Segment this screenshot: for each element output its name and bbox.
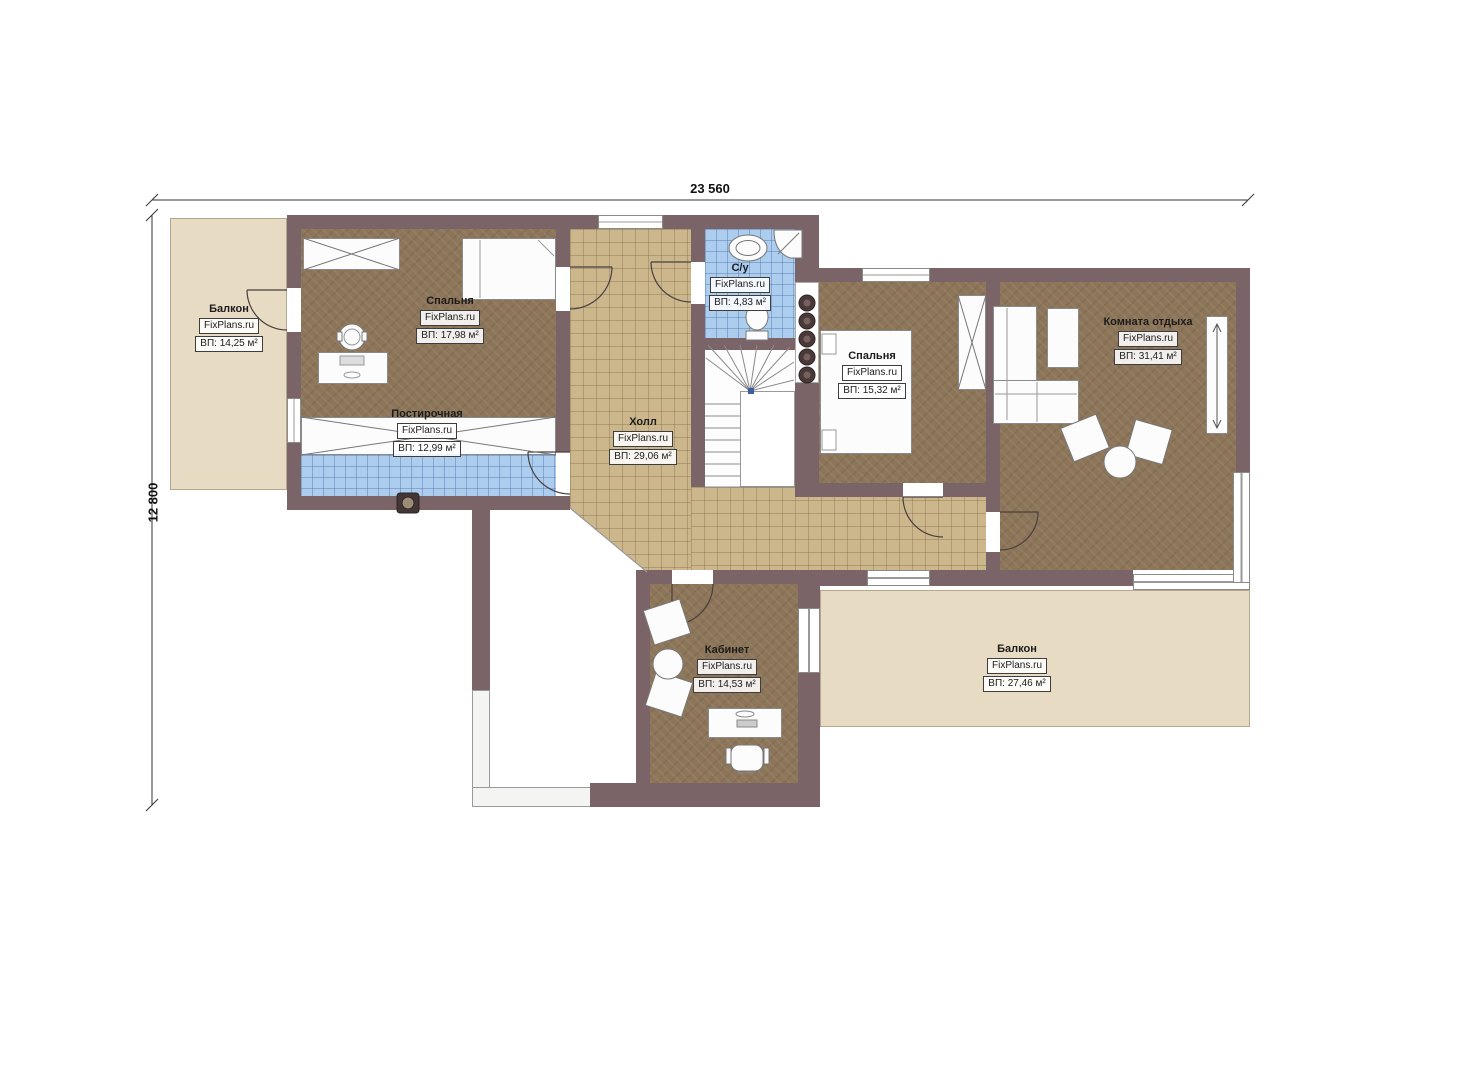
room-area: ВП: 17,98 м² bbox=[416, 328, 483, 344]
room-label-balcony-left: Балкон FixPlans.ru ВП: 14,25 м² bbox=[172, 303, 286, 352]
bedroom1-left-window bbox=[287, 398, 301, 443]
wall-stairs-right bbox=[795, 383, 819, 487]
laundry-door-opening bbox=[556, 452, 570, 496]
bedroom2-top-window bbox=[862, 268, 930, 282]
stair-column-ledge bbox=[795, 282, 819, 383]
bedroom2-door-opening bbox=[903, 483, 943, 497]
room-watermark: FixPlans.ru bbox=[1118, 331, 1178, 347]
room-area: ВП: 27,46 м² bbox=[983, 676, 1050, 692]
room-name: Спальня bbox=[818, 350, 926, 363]
room-name: С/у bbox=[694, 262, 786, 275]
room-watermark: FixPlans.ru bbox=[987, 658, 1047, 674]
room-name: Комната отдыха bbox=[1093, 316, 1203, 329]
floor-plan-canvas: Балкон FixPlans.ru ВП: 14,25 м² Спальня … bbox=[0, 0, 1474, 1080]
room-label-balcony-bottom: Балкон FixPlans.ru ВП: 27,46 м² bbox=[962, 643, 1072, 692]
wall-office-top bbox=[636, 570, 820, 584]
void-railing-bottom bbox=[472, 787, 594, 807]
room-name: Постирочная bbox=[372, 408, 482, 421]
room-label-office: Кабинет FixPlans.ru ВП: 14,53 м² bbox=[672, 644, 782, 693]
room-area: ВП: 14,25 м² bbox=[195, 336, 262, 352]
room-area: ВП: 15,32 м² bbox=[838, 383, 905, 399]
laundry-floor bbox=[301, 455, 556, 496]
room-watermark: FixPlans.ru bbox=[710, 277, 770, 293]
lounge-tall-cabinet bbox=[1206, 316, 1228, 434]
wall-office-right bbox=[798, 570, 820, 807]
bedroom2-wardrobe bbox=[958, 295, 986, 390]
room-name: Спальня bbox=[395, 295, 505, 308]
room-area: ВП: 12,99 м² bbox=[393, 441, 460, 457]
room-watermark: FixPlans.ru bbox=[842, 365, 902, 381]
room-label-laundry: Постирочная FixPlans.ru ВП: 12,99 м² bbox=[372, 408, 482, 457]
room-name: Балкон bbox=[962, 643, 1072, 656]
room-name: Холл bbox=[588, 416, 698, 429]
balcony-left-floor bbox=[170, 218, 287, 490]
room-watermark: FixPlans.ru bbox=[199, 318, 259, 334]
room-watermark: FixPlans.ru bbox=[613, 431, 673, 447]
room-label-lounge: Комната отдыха FixPlans.ru ВП: 31,41 м² bbox=[1093, 316, 1203, 365]
office-desk bbox=[708, 708, 782, 738]
room-watermark: FixPlans.ru bbox=[397, 423, 457, 439]
lounge-sofa-horizontal bbox=[993, 380, 1079, 424]
room-watermark: FixPlans.ru bbox=[420, 310, 480, 326]
room-name: Балкон bbox=[172, 303, 286, 316]
bedroom1-wardrobe bbox=[303, 238, 400, 270]
balcony-door-opening bbox=[287, 288, 301, 332]
wall-office-left bbox=[636, 570, 650, 807]
room-watermark: FixPlans.ru bbox=[697, 659, 757, 675]
wall-bedroom2-bottom bbox=[795, 483, 986, 497]
corridor-bottom-window bbox=[867, 570, 930, 586]
wall-top-left bbox=[287, 215, 819, 229]
hall-floor bbox=[570, 229, 691, 572]
room-area: ВП: 31,41 м² bbox=[1114, 349, 1181, 365]
office-door-opening bbox=[672, 570, 713, 584]
wall-office-bottom bbox=[590, 783, 820, 807]
stairwell-void bbox=[740, 391, 795, 487]
bedroom1-bed bbox=[462, 238, 556, 300]
hall-top-window bbox=[598, 215, 663, 229]
room-area: ВП: 14,53 м² bbox=[693, 677, 760, 693]
bedroom1-door-opening bbox=[556, 267, 570, 311]
wall-lounge-right bbox=[1236, 268, 1250, 472]
dimension-width-label: 23 560 bbox=[660, 181, 760, 196]
lounge-side-table bbox=[1047, 308, 1079, 368]
room-label-bathroom: С/у FixPlans.ru ВП: 4,83 м² bbox=[694, 262, 786, 311]
room-area: ВП: 29,06 м² bbox=[609, 449, 676, 465]
wall-left bbox=[287, 215, 301, 510]
lounge-right-window bbox=[1233, 472, 1250, 583]
office-right-window bbox=[798, 608, 820, 673]
wall-bathroom-right bbox=[795, 229, 819, 282]
room-label-bedroom1: Спальня FixPlans.ru ВП: 17,98 м² bbox=[395, 295, 505, 344]
room-area: ВП: 4,83 м² bbox=[709, 295, 771, 311]
wall-bottom-blockA bbox=[287, 496, 570, 510]
dimension-height-label: 12 800 bbox=[146, 463, 161, 543]
corridor-floor bbox=[691, 487, 986, 570]
lounge-door-opening bbox=[986, 512, 1000, 552]
bedroom1-desk bbox=[318, 352, 388, 384]
room-label-bedroom2: Спальня FixPlans.ru ВП: 15,32 м² bbox=[818, 350, 926, 399]
room-name: Кабинет bbox=[672, 644, 782, 657]
room-label-hall: Холл FixPlans.ru ВП: 29,06 м² bbox=[588, 416, 698, 465]
wall-void-left bbox=[472, 508, 490, 690]
